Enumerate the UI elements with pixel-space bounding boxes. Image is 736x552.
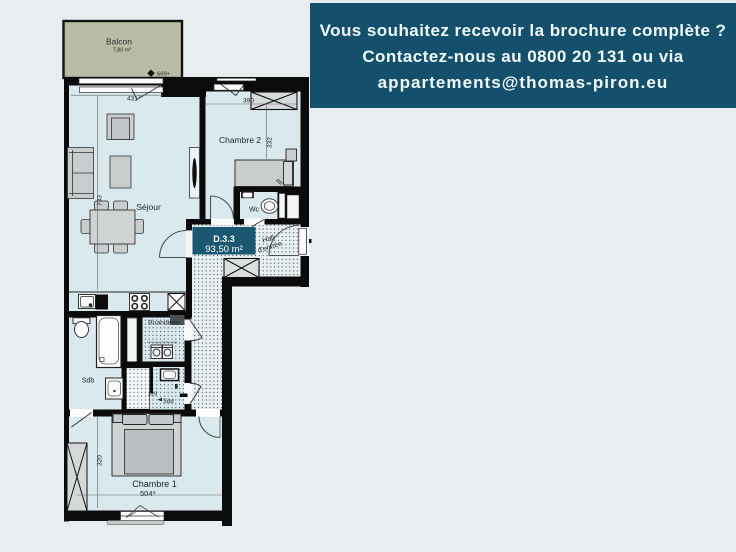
svg-text:Buanderie: Buanderie (148, 320, 179, 327)
svg-text:93,50 m²: 93,50 m² (205, 244, 243, 255)
svg-text:Chambre 2: Chambre 2 (219, 135, 261, 145)
svg-text:Séjour: Séjour (136, 202, 161, 212)
svg-text:Sdd: Sdd (163, 399, 174, 405)
svg-text:Lave-linge Sèche-linge: Lave-linge Sèche-linge (147, 340, 178, 344)
svg-text:7,80 m²: 7,80 m² (113, 48, 131, 54)
svg-text:229: 229 (148, 392, 157, 398)
svg-text:Wc: Wc (249, 207, 260, 214)
svg-text:D.3.3: D.3.3 (213, 234, 235, 244)
svg-text:669+: 669+ (157, 72, 171, 78)
svg-text:Balcon: Balcon (106, 37, 132, 47)
svg-text:733: 733 (97, 195, 104, 206)
svg-text:390: 390 (243, 97, 254, 104)
svg-text:332: 332 (267, 137, 274, 148)
svg-text:Sdb: Sdb (82, 378, 95, 385)
svg-text:Chambre 1: Chambre 1 (132, 479, 177, 489)
svg-text:431: 431 (127, 96, 138, 103)
svg-text:504: 504 (140, 489, 153, 498)
svg-text:320: 320 (97, 455, 104, 466)
